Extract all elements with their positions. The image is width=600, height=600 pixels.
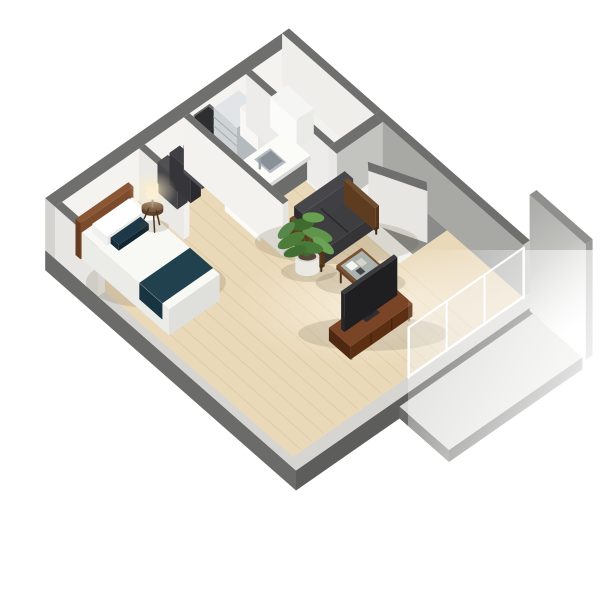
nightstand-leg-1: [154, 215, 155, 232]
floorplan-render-stage: [0, 0, 600, 600]
table-lamp-glow: [128, 171, 176, 211]
fade-bottom-right: [408, 250, 600, 600]
apartment-3d-floorplan-render: [0, 0, 600, 600]
